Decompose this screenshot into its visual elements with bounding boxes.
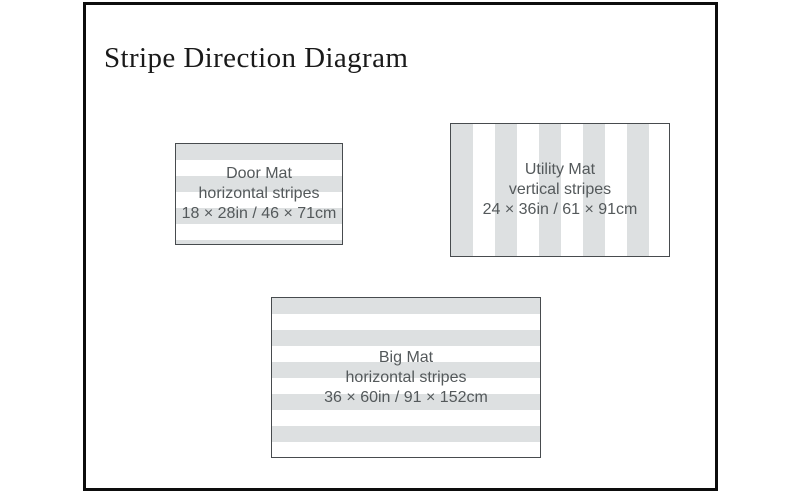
mat-name-label: Door Mat (226, 164, 292, 184)
mat-size-label: 36 × 60in / 91 × 152cm (324, 388, 488, 408)
big-mat: Big Mat horizontal stripes 36 × 60in / 9… (271, 297, 541, 458)
diagram-canvas: Stripe Direction Diagram Door Mat horizo… (0, 0, 800, 495)
diagram-title: Stripe Direction Diagram (104, 42, 408, 75)
mat-stripe-direction-label: horizontal stripes (346, 368, 467, 388)
mat-stripe-direction-label: horizontal stripes (199, 184, 320, 204)
mat-name-label: Big Mat (379, 348, 433, 368)
mat-name-label: Utility Mat (525, 160, 595, 180)
mat-stripe-direction-label: vertical stripes (509, 180, 611, 200)
utility-mat: Utility Mat vertical stripes 24 × 36in /… (450, 123, 670, 257)
door-mat: Door Mat horizontal stripes 18 × 28in / … (175, 143, 343, 245)
mat-size-label: 18 × 28in / 46 × 71cm (182, 204, 337, 224)
mat-size-label: 24 × 36in / 61 × 91cm (483, 200, 638, 220)
